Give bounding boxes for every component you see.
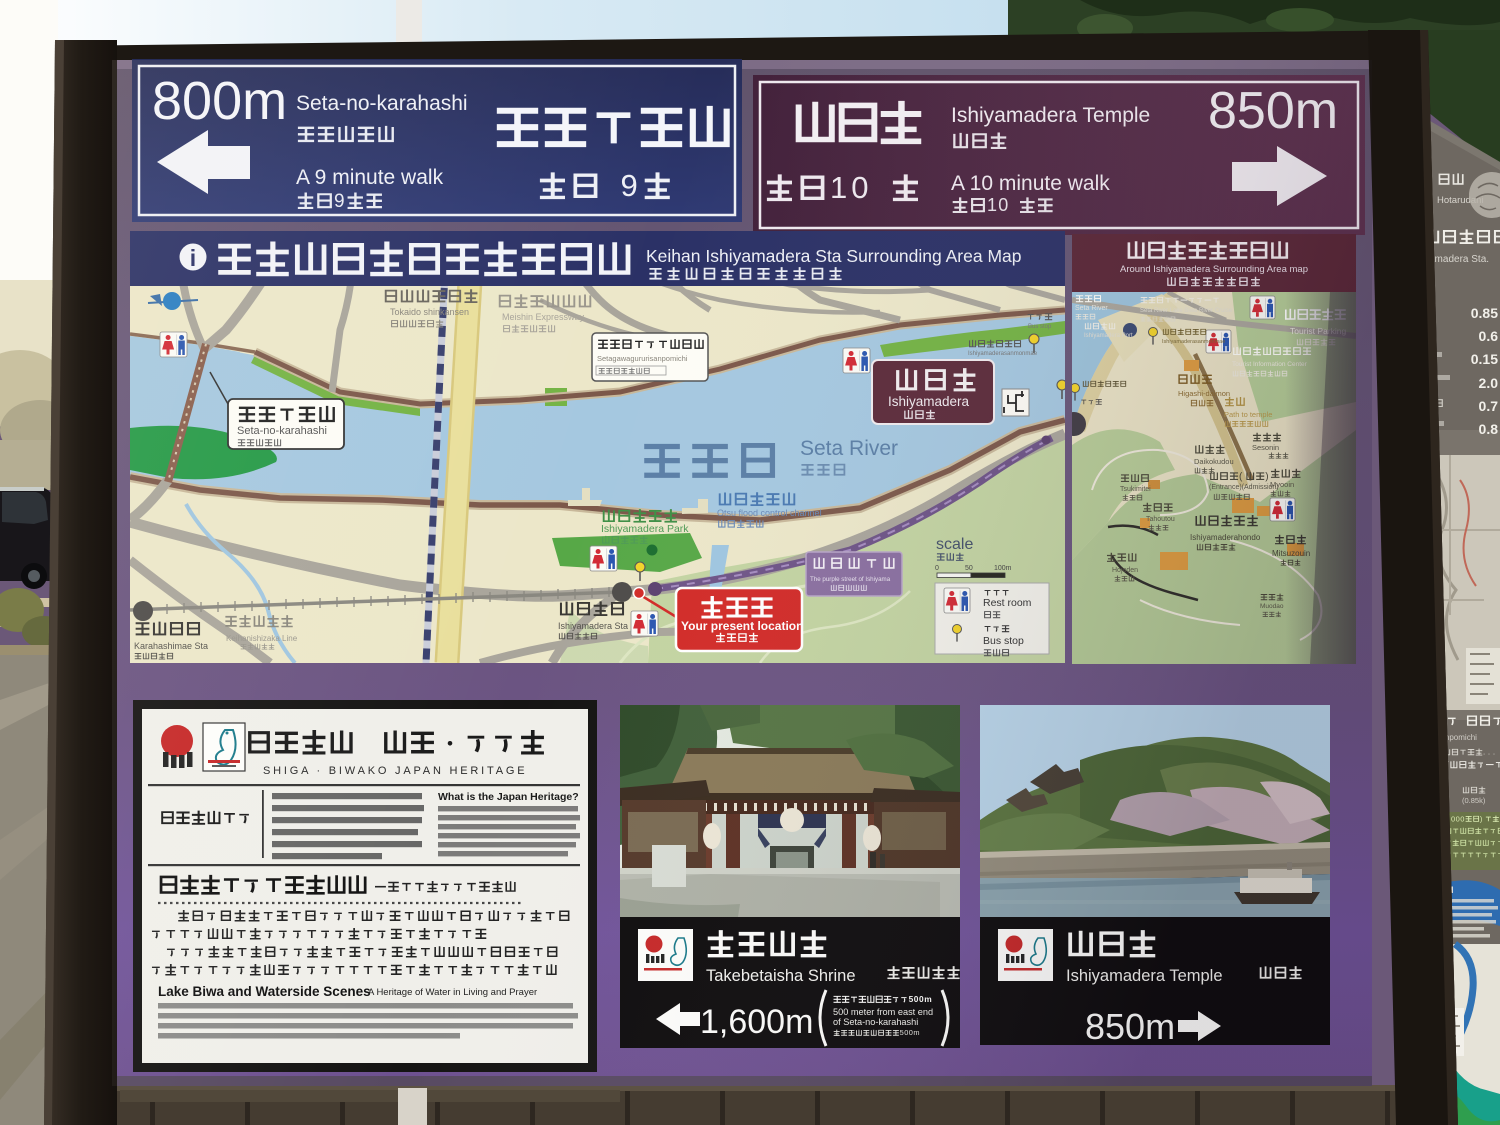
svg-text:.: . bbox=[1488, 748, 1490, 757]
svg-text:800m: 800m bbox=[152, 71, 287, 131]
svg-text:Sesonin: Sesonin bbox=[1252, 443, 1279, 452]
svg-text:Seta River Lake Biwa River Cru: Seta River Lake Biwa River Cruise bbox=[1140, 308, 1233, 314]
svg-text:0: 0 bbox=[998, 195, 1008, 215]
svg-text:0: 0 bbox=[1460, 814, 1464, 823]
svg-text:Bus stop: Bus stop bbox=[983, 635, 1024, 647]
svg-text:0.8: 0.8 bbox=[1479, 421, 1499, 437]
svg-text:0.7: 0.7 bbox=[1479, 398, 1499, 414]
svg-text:0.6: 0.6 bbox=[1479, 328, 1499, 344]
svg-text:The purple street of Ishiyama: The purple street of Ishiyama bbox=[810, 576, 891, 583]
svg-text:A 9 minute walk: A 9 minute walk bbox=[296, 166, 444, 189]
svg-text:(Entrance)(Admission): (Entrance)(Admission) bbox=[1209, 484, 1279, 491]
svg-text:850m: 850m bbox=[1208, 82, 1338, 140]
svg-text:m: m bbox=[924, 994, 931, 1004]
svg-text:Ishiyamadera Sta: Ishiyamadera Sta bbox=[558, 621, 628, 631]
svg-text:.: . bbox=[1493, 748, 1495, 757]
svg-text:9: 9 bbox=[621, 168, 638, 203]
svg-text:(0.85k): (0.85k) bbox=[1462, 796, 1486, 805]
svg-text:850m: 850m bbox=[1085, 1006, 1175, 1047]
svg-text:500 meter from east end: 500 meter from east end bbox=[833, 1007, 933, 1017]
svg-text:9: 9 bbox=[334, 191, 345, 212]
svg-text:Higashi-daimon: Higashi-daimon bbox=[1178, 389, 1230, 398]
svg-text:Daikokudou: Daikokudou bbox=[1194, 457, 1234, 466]
svg-text:0: 0 bbox=[935, 565, 939, 572]
svg-text:Keihanishizaka Line: Keihanishizaka Line bbox=[226, 634, 298, 643]
svg-text:0: 0 bbox=[1456, 814, 1460, 823]
svg-text:Otsu flood control channel: Otsu flood control channel bbox=[717, 508, 822, 518]
svg-text:Path to temple: Path to temple bbox=[1224, 410, 1272, 419]
svg-text:1,600m: 1,600m bbox=[700, 1003, 813, 1041]
svg-text:1: 1 bbox=[830, 170, 847, 205]
svg-text:A 10 minute walk: A 10 minute walk bbox=[951, 172, 1110, 195]
svg-text:Keihan Ishiyamadera Sta Surrou: Keihan Ishiyamadera Sta Surrounding Area… bbox=[646, 246, 1022, 266]
svg-text:Meishin Expressway: Meishin Expressway bbox=[502, 312, 585, 322]
svg-text:Rest room: Rest room bbox=[983, 597, 1032, 609]
svg-text:Seta River: Seta River bbox=[1075, 305, 1108, 312]
svg-text:Ishiyamadera Park: Ishiyamadera Park bbox=[601, 523, 689, 535]
svg-text:Ishiyamadera Port: Ishiyamadera Port bbox=[1084, 333, 1133, 339]
svg-text:): ) bbox=[1265, 471, 1268, 482]
svg-text:Muodao: Muodao bbox=[1260, 603, 1284, 610]
svg-text:Tahoutou: Tahoutou bbox=[1146, 516, 1175, 523]
svg-text:Ishiyamadera: Ishiyamadera bbox=[888, 394, 970, 409]
svg-text:Hojoden: Hojoden bbox=[1112, 567, 1138, 574]
svg-text:Ishiyamaderasanmonmae: Ishiyamaderasanmonmae bbox=[968, 351, 1038, 357]
svg-text:i: i bbox=[190, 245, 196, 271]
svg-text:0.85: 0.85 bbox=[1471, 305, 1498, 321]
svg-text:50: 50 bbox=[965, 565, 973, 572]
svg-text:0: 0 bbox=[909, 1028, 913, 1037]
svg-text:m: m bbox=[913, 1028, 919, 1037]
svg-text:Your present location: Your present location bbox=[681, 619, 803, 633]
svg-text:0.15: 0.15 bbox=[1471, 351, 1498, 367]
svg-text:0: 0 bbox=[904, 1028, 908, 1037]
svg-text:Karahashimae Sta: Karahashimae Sta bbox=[134, 641, 208, 651]
svg-text:SHIGA · BIWAKO JAPAN HERITAGE: SHIGA · BIWAKO JAPAN HERITAGE bbox=[263, 765, 527, 777]
svg-text:Tokaido shinkansen: Tokaido shinkansen bbox=[390, 307, 469, 317]
svg-text:2.0: 2.0 bbox=[1479, 375, 1499, 391]
svg-text:Around Ishiyamadera Surroundin: Around Ishiyamadera Surrounding Area map bbox=[1120, 264, 1308, 275]
svg-text:Ishiyamaderahondo: Ishiyamaderahondo bbox=[1190, 533, 1261, 542]
svg-text:scale: scale bbox=[936, 536, 973, 553]
svg-text:What is the Japan Heritage?: What is the Japan Heritage? bbox=[438, 791, 579, 803]
svg-text:0: 0 bbox=[1451, 814, 1455, 823]
svg-text:Tsukimitei: Tsukimitei bbox=[1120, 486, 1151, 493]
svg-text:Ishiyamadera Temple: Ishiyamadera Temple bbox=[1066, 967, 1223, 985]
svg-text:Setagawagururisanpomichi: Setagawagururisanpomichi bbox=[597, 354, 688, 363]
svg-text:Seta-no-karahashi: Seta-no-karahashi bbox=[296, 92, 468, 115]
svg-text:Seta-no-karahashi: Seta-no-karahashi bbox=[237, 425, 327, 437]
svg-text:Bus stop: Bus stop bbox=[1028, 324, 1052, 330]
svg-text:Lake Biwa and Waterside Scenes: Lake Biwa and Waterside Scenes bbox=[158, 984, 371, 999]
svg-text:Ishiyamadera Temple: Ishiyamadera Temple bbox=[951, 104, 1150, 127]
svg-text:100m: 100m bbox=[994, 565, 1012, 572]
svg-text:Takebetaisha Shrine: Takebetaisha Shrine bbox=[706, 967, 856, 985]
svg-text:Ishiyamaderasanmonmae: Ishiyamaderasanmonmae bbox=[1162, 339, 1225, 345]
svg-text:Seta River: Seta River bbox=[800, 437, 898, 460]
svg-text:of Seta-no-karahashi: of Seta-no-karahashi bbox=[833, 1017, 918, 1027]
svg-text:0: 0 bbox=[851, 170, 868, 205]
svg-text:.: . bbox=[1483, 748, 1485, 757]
svg-text:1: 1 bbox=[987, 195, 997, 215]
svg-text:5: 5 bbox=[900, 1028, 904, 1037]
svg-text:A Heritage of Water in Living: A Heritage of Water in Living and Prayer bbox=[368, 987, 537, 998]
